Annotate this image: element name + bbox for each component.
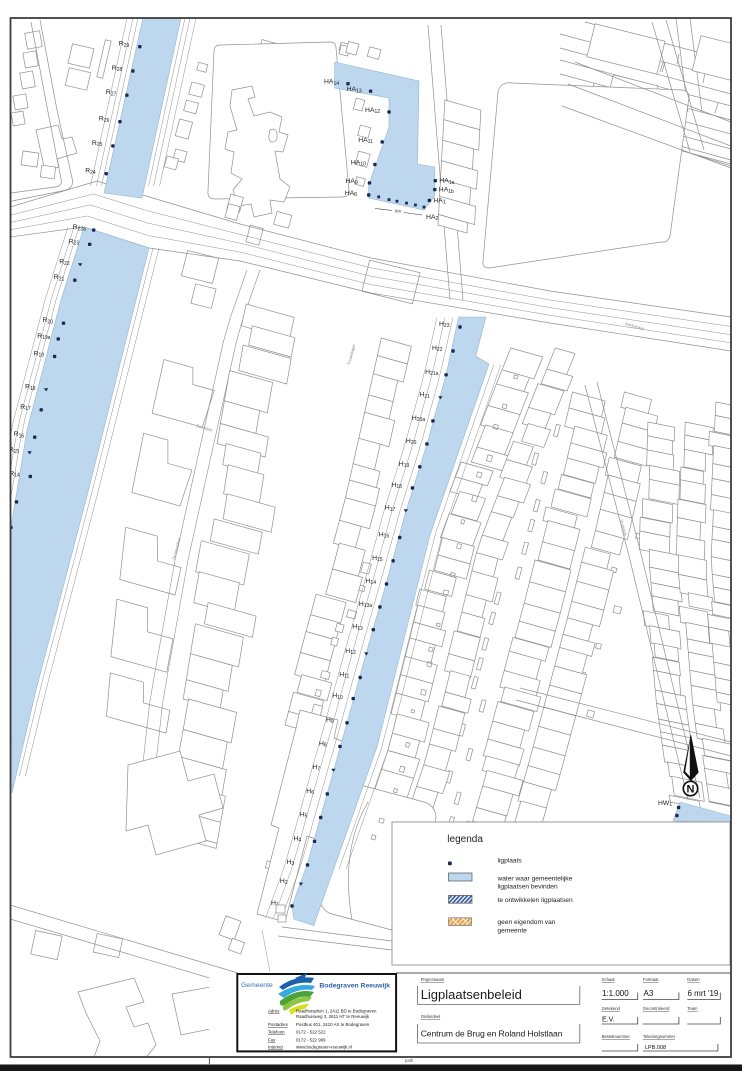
- svg-text:N: N: [687, 784, 695, 796]
- svg-text:www.bodegraven-reeuwijk.nl: www.bodegraven-reeuwijk.nl: [296, 1045, 352, 1050]
- svg-text:legenda: legenda: [447, 834, 483, 845]
- svg-text:HA1a: HA1a: [439, 178, 454, 186]
- svg-text:R23a: R23a: [73, 224, 86, 232]
- svg-text:1:1.000: 1:1.000: [602, 989, 629, 998]
- svg-text:Internet: Internet: [268, 1045, 284, 1050]
- svg-text:R25: R25: [92, 140, 103, 148]
- svg-text:H15: H15: [372, 555, 383, 563]
- svg-text:H10: H10: [332, 693, 343, 701]
- svg-text:R26: R26: [99, 116, 110, 124]
- svg-text:H18: H18: [391, 482, 402, 490]
- svg-text:Gecontroleerd: Gecontroleerd: [643, 1006, 670, 1011]
- svg-text:H14: H14: [366, 578, 377, 586]
- svg-text:path: path: [405, 1058, 414, 1063]
- svg-text:H12: H12: [345, 648, 356, 656]
- svg-text:R28: R28: [112, 65, 123, 73]
- svg-text:E.V.: E.V.: [602, 1017, 615, 1024]
- svg-text:R20: R20: [43, 317, 54, 325]
- svg-text:H11: H11: [339, 672, 349, 680]
- svg-text:H13a: H13a: [359, 601, 372, 609]
- svg-text:R23: R23: [69, 238, 80, 246]
- svg-text:Adres: Adres: [268, 1009, 280, 1014]
- svg-text:HW1: HW1: [658, 800, 672, 808]
- svg-text:H20: H20: [406, 438, 417, 446]
- svg-text:6 mrt '19: 6 mrt '19: [688, 989, 719, 998]
- svg-text:HA1: HA1: [433, 197, 445, 205]
- svg-text:Telefoon: Telefoon: [268, 1030, 285, 1035]
- svg-text:H21a: H21a: [425, 369, 438, 377]
- svg-text:6m: 6m: [395, 209, 401, 214]
- svg-text:Ligplaatsenbeleid: Ligplaatsenbeleid: [421, 987, 522, 1002]
- svg-text:gemeente: gemeente: [498, 928, 528, 935]
- svg-text:R17: R17: [20, 404, 31, 412]
- svg-text:Fax: Fax: [268, 1038, 276, 1043]
- svg-text:Onderdeel: Onderdeel: [421, 1014, 441, 1019]
- svg-text:ligplaats: ligplaats: [498, 858, 523, 865]
- svg-text:H13: H13: [352, 624, 363, 632]
- svg-text:H22: H22: [432, 345, 443, 353]
- svg-text:HA10: HA10: [351, 160, 366, 168]
- svg-text:Postbus 401, 2410 AX te Bodegr: Postbus 401, 2410 AX te Bodegraven: [296, 1022, 370, 1027]
- svg-text:Formaat: Formaat: [643, 977, 659, 982]
- svg-text:HA8: HA8: [345, 190, 357, 198]
- svg-text:water waar gemeentelijke: water waar gemeentelijke: [497, 876, 573, 883]
- svg-text:0172 - 522 999: 0172 - 522 999: [296, 1038, 326, 1043]
- svg-text:H4: H4: [294, 835, 302, 843]
- svg-text:Raadhuisweg 3, 2811 HT te Reeu: Raadhuisweg 3, 2811 HT te Reeuwijk: [296, 1014, 370, 1019]
- svg-text:0172 - 522 522: 0172 - 522 522: [296, 1030, 326, 1035]
- svg-text:H21: H21: [419, 392, 430, 400]
- svg-text:Schaal: Schaal: [602, 977, 615, 982]
- svg-text:R21: R21: [54, 274, 65, 282]
- svg-text:A3: A3: [644, 989, 654, 998]
- svg-text:R22: R22: [59, 259, 70, 267]
- svg-text:Bodegraven Reeuwijk: Bodegraven Reeuwijk: [319, 983, 390, 990]
- svg-text:HA12: HA12: [365, 107, 380, 115]
- svg-text:R19: R19: [34, 350, 45, 358]
- svg-text:HA13: HA13: [347, 86, 362, 94]
- svg-text:Projectnaam: Projectnaam: [421, 977, 445, 982]
- svg-text:Centrum de Brug en Roland Hols: Centrum de Brug en Roland Holstlaan: [421, 1029, 563, 1039]
- svg-text:H19: H19: [399, 461, 410, 469]
- svg-text:R29: R29: [119, 41, 130, 49]
- svg-text:R27: R27: [106, 89, 117, 97]
- svg-text:H17: H17: [385, 505, 396, 513]
- svg-text:HA14: HA14: [324, 79, 339, 87]
- svg-text:R16: R16: [14, 431, 25, 439]
- svg-text:H23: H23: [439, 321, 450, 329]
- svg-text:HA2: HA2: [426, 214, 438, 222]
- svg-text:Getekend: Getekend: [602, 1006, 621, 1011]
- svg-text:H7: H7: [312, 764, 320, 772]
- svg-text:ligplaatsen bevinden: ligplaatsen bevinden: [498, 884, 558, 891]
- svg-text:Datum: Datum: [687, 977, 700, 982]
- svg-text:H2: H2: [280, 878, 288, 886]
- svg-text:R19a: R19a: [37, 333, 50, 341]
- svg-text:R18: R18: [25, 384, 36, 392]
- svg-text:Postadres: Postadres: [268, 1022, 289, 1027]
- svg-text:R24: R24: [85, 168, 96, 176]
- svg-text:H9: H9: [326, 717, 334, 725]
- svg-text:te ontwikkelen ligplaatsen: te ontwikkelen ligplaatsen: [498, 897, 573, 904]
- svg-text:Team: Team: [687, 1006, 698, 1011]
- svg-text:Tekeningnummer: Tekeningnummer: [643, 1034, 676, 1039]
- svg-text:HA9: HA9: [346, 178, 358, 186]
- svg-text:H3: H3: [287, 859, 295, 867]
- svg-text:H16: H16: [379, 532, 390, 540]
- svg-text:geen eigendom van: geen eigendom van: [498, 919, 556, 926]
- svg-text:Gemeente: Gemeente: [241, 982, 273, 989]
- svg-text:HA1b: HA1b: [439, 187, 454, 195]
- svg-text:H20a: H20a: [412, 415, 425, 423]
- svg-text:H5: H5: [300, 812, 308, 820]
- svg-text:H8: H8: [319, 740, 327, 748]
- svg-text:H6: H6: [306, 788, 314, 796]
- svg-text:LPB.008: LPB.008: [645, 1045, 666, 1051]
- svg-text:Besteknummer: Besteknummer: [602, 1034, 631, 1039]
- svg-text:Raadhuisplein 1, 2411 BD te Bo: Raadhuisplein 1, 2411 BD te Bodegraven: [296, 1009, 377, 1014]
- svg-text:HA11: HA11: [358, 137, 373, 145]
